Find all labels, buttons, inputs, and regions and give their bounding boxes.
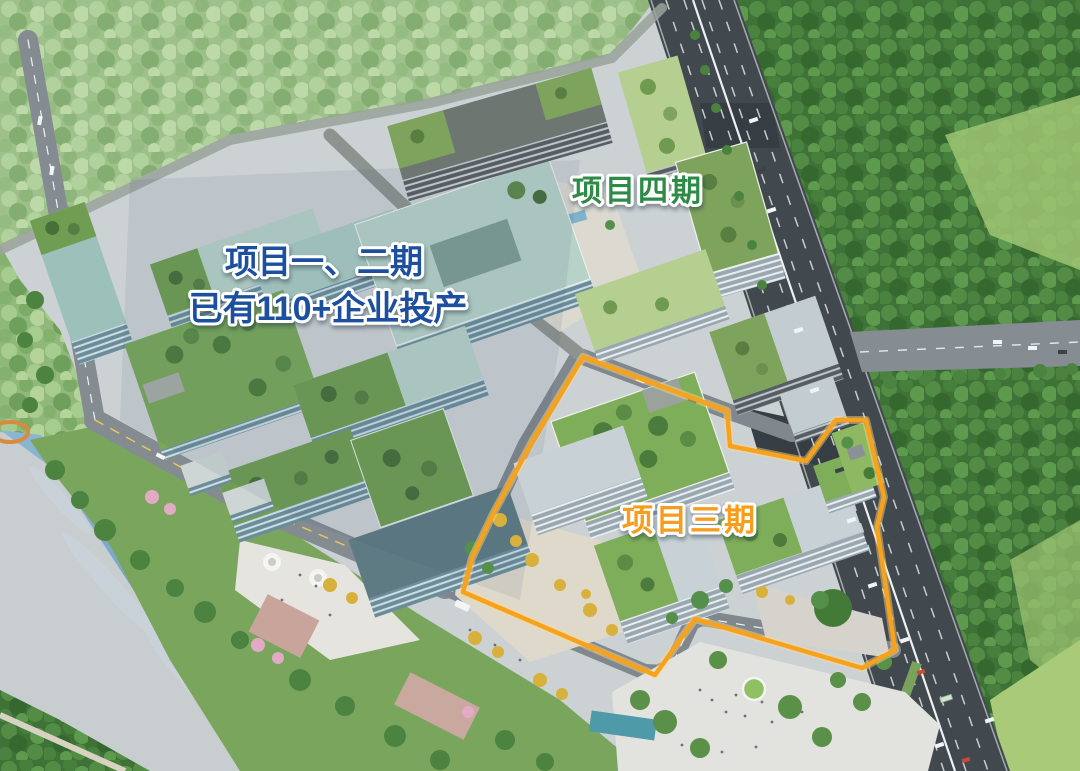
- aerial-masterplan-rendering: 项目一、二期 已有110+企业投产 项目四期 项目三期: [0, 0, 1080, 771]
- label-phase3: 项目三期: [622, 503, 758, 538]
- label-phase4: 项目四期: [572, 175, 704, 208]
- far-riverbank: [0, 690, 150, 771]
- label-phase12-line2: 已有110+企业投产: [189, 289, 468, 328]
- label-phase12-line1: 项目一、二期: [225, 243, 423, 280]
